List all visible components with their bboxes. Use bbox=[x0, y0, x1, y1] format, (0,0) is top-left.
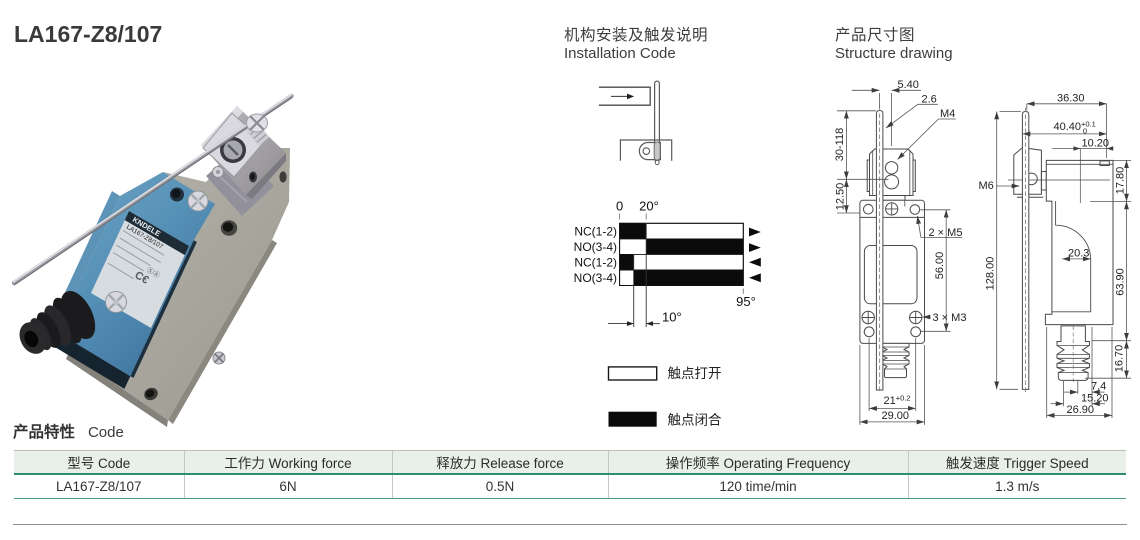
svg-text:3 × M3: 3 × M3 bbox=[933, 312, 967, 324]
svg-text:触点打开: 触点打开 bbox=[668, 365, 722, 381]
svg-text:128.00: 128.00 bbox=[984, 257, 996, 291]
svg-text:63.90: 63.90 bbox=[1114, 268, 1126, 296]
svg-text:12.50: 12.50 bbox=[834, 183, 846, 211]
svg-text:26.90: 26.90 bbox=[1067, 404, 1095, 416]
svg-text:17.80: 17.80 bbox=[1115, 167, 1127, 195]
svg-text:95°: 95° bbox=[736, 294, 756, 309]
svg-text:M6: M6 bbox=[979, 180, 994, 192]
svg-text:NC(1-2): NC(1-2) bbox=[574, 225, 617, 239]
svg-text:2 × M5: 2 × M5 bbox=[929, 227, 963, 239]
svg-text:36.30: 36.30 bbox=[1057, 93, 1085, 105]
svg-text:20.3: 20.3 bbox=[1068, 248, 1089, 260]
svg-text:7.4: 7.4 bbox=[1091, 380, 1106, 392]
svg-text:20°: 20° bbox=[639, 199, 659, 214]
svg-text:56.00: 56.00 bbox=[934, 252, 946, 280]
svg-text:NO(3-4): NO(3-4) bbox=[574, 240, 617, 254]
svg-text:0: 0 bbox=[616, 199, 623, 214]
svg-text:2.6: 2.6 bbox=[922, 94, 937, 106]
svg-text:10°: 10° bbox=[662, 310, 682, 325]
svg-text:15.20: 15.20 bbox=[1081, 392, 1109, 404]
svg-text:21+0.2: 21+0.2 bbox=[884, 394, 911, 408]
svg-text:10.20: 10.20 bbox=[1082, 137, 1110, 149]
svg-text:29.00: 29.00 bbox=[882, 410, 910, 422]
svg-text:16.70: 16.70 bbox=[1113, 345, 1125, 373]
svg-text:5.40: 5.40 bbox=[898, 79, 919, 91]
svg-text:30-118: 30-118 bbox=[834, 128, 846, 161]
svg-text:触点闭合: 触点闭合 bbox=[668, 413, 722, 428]
svg-text:40.40+0.10: 40.40+0.10 bbox=[1054, 120, 1096, 136]
svg-text:NC(1-2): NC(1-2) bbox=[574, 256, 617, 270]
svg-text:NO(3-4): NO(3-4) bbox=[574, 271, 617, 285]
svg-text:M4: M4 bbox=[940, 108, 955, 120]
